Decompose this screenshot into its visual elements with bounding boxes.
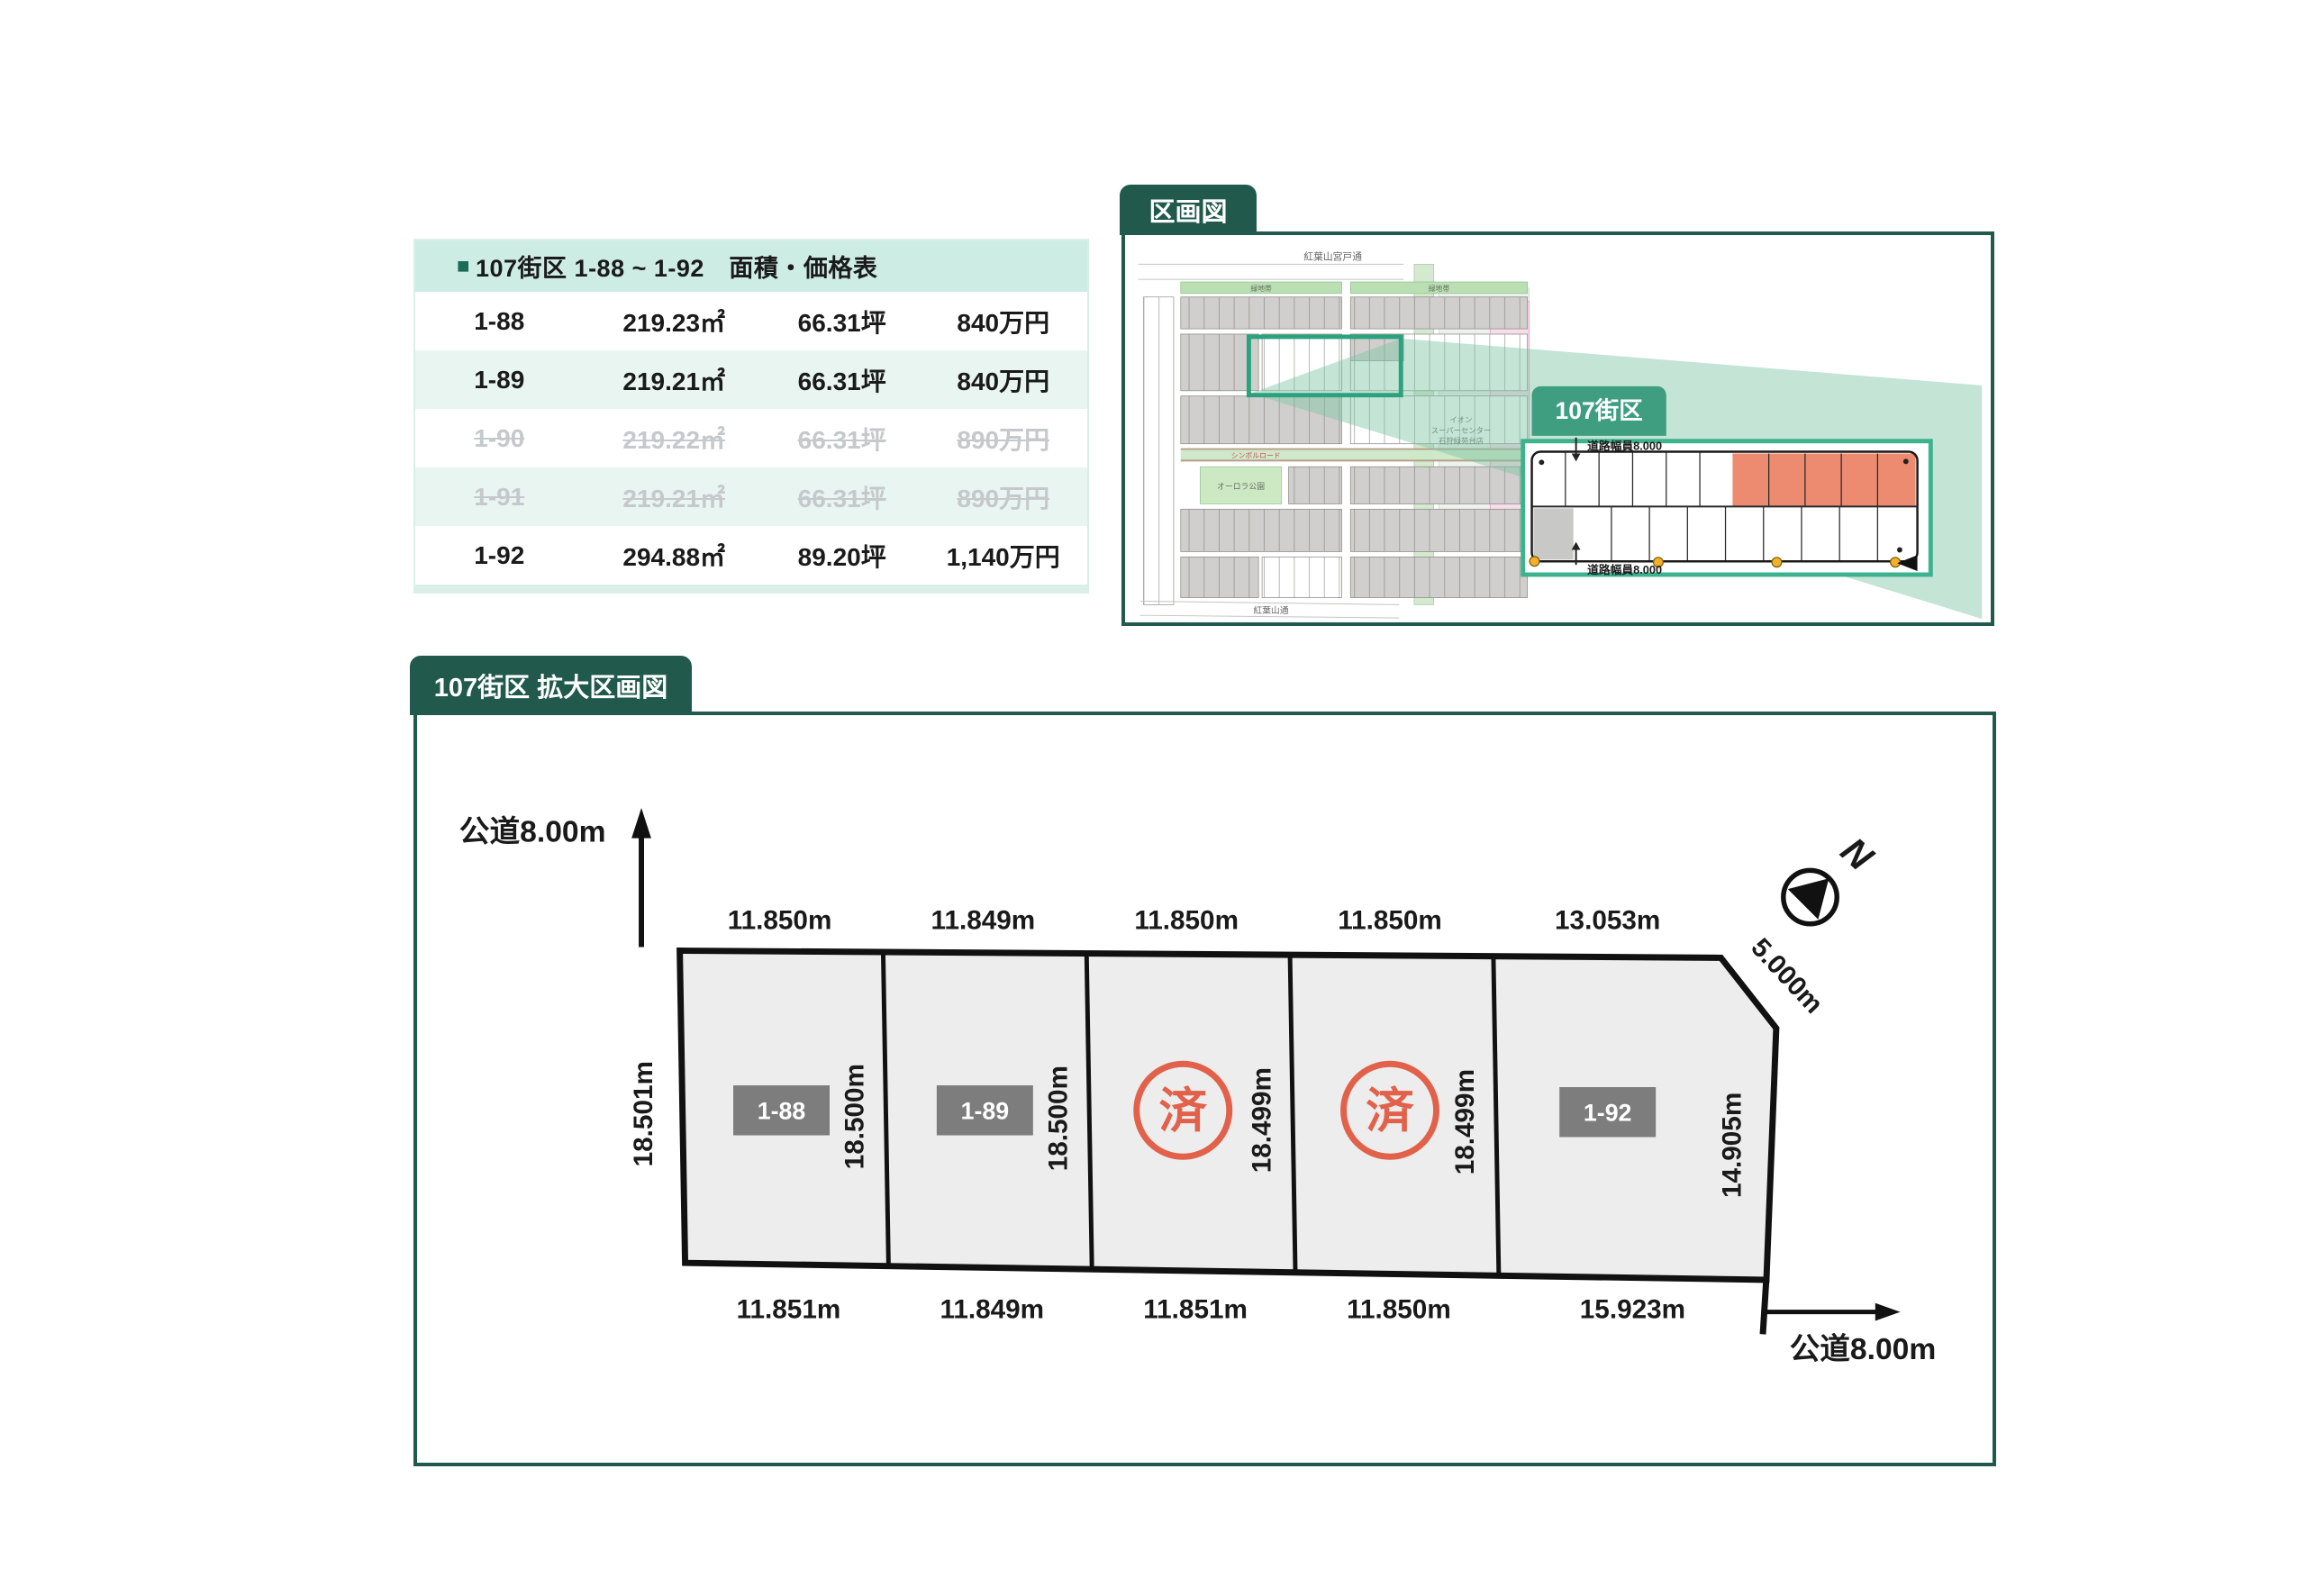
flyer-canvas: ■ 107街区 1-88 ~ 1-92 面積・価格表 1-88 219.23㎡ … <box>0 0 2306 1596</box>
road-bottom-label: 紅葉山通 <box>1253 604 1288 616</box>
cell-price: 890万円 <box>919 421 1087 457</box>
dim-bottom-1-90: 11.851m <box>1143 1295 1248 1325</box>
park-label: オーロラ公園 <box>1217 482 1265 491</box>
cell-price: 890万円 <box>919 479 1087 515</box>
cell-lot: 1-90 <box>415 424 584 453</box>
tag-1-92: 1-92 <box>1584 1100 1632 1127</box>
cell-area: 219.22㎡ <box>584 421 765 457</box>
dim-side-1-90: 18.499m <box>1247 1067 1276 1173</box>
price-table-title: 107街区 1-88 ~ 1-92 面積・価格表 <box>476 249 877 284</box>
tag-1-88: 1-88 <box>758 1098 806 1125</box>
price-table: ■ 107街区 1-88 ~ 1-92 面積・価格表 1-88 219.23㎡ … <box>413 239 1089 594</box>
road-top-left-label: 公道8.00m <box>459 815 606 849</box>
table-row-1-91-sold: 1-91 219.21㎡ 66.31坪 890万円 <box>415 467 1087 526</box>
cell-lot: 1-89 <box>415 366 584 394</box>
cell-price: 1,140万円 <box>919 538 1087 574</box>
road-right-arrow-icon <box>1875 1303 1901 1321</box>
dim-top-1-89: 11.849m <box>931 906 1036 936</box>
cell-lot: 1-92 <box>415 541 584 570</box>
lot-strip <box>1350 297 1527 329</box>
inset-road-width-bottom: 道路幅員8.000 <box>1587 563 1662 576</box>
cell-tsubo: 66.31坪 <box>765 304 920 340</box>
inset-salmon-lots <box>1732 453 1915 506</box>
header-square-icon: ■ <box>457 254 470 279</box>
lot-strip <box>1289 467 1342 503</box>
dim-side-1-88: 18.500m <box>840 1064 870 1169</box>
enlarged-plan-svg: 公道8.00m 11.850m 11.849m 11.850m 11.850m … <box>417 715 1993 1463</box>
dim-bottom-1-88: 11.851m <box>737 1295 841 1325</box>
inset-label: 107街区 <box>1556 397 1643 424</box>
cell-price: 840万円 <box>919 362 1087 398</box>
sold-mark-1-90: 済 <box>1158 1085 1207 1138</box>
cell-tsubo: 89.20坪 <box>765 538 920 574</box>
table-row-1-92: 1-92 294.88㎡ 89.20坪 1,140万円 <box>415 526 1087 585</box>
tag-1-89: 1-89 <box>961 1098 1010 1125</box>
road-up-arrow-icon <box>631 808 651 839</box>
cell-tsubo: 66.31坪 <box>765 421 920 457</box>
dim-bottom-1-89: 11.849m <box>940 1295 1044 1325</box>
table-row-1-90-sold: 1-90 219.22㎡ 66.31坪 890万円 <box>415 409 1087 467</box>
road-top-label: 紅葉山宮戸通 <box>1303 250 1362 262</box>
dim-outer-left: 18.501m <box>629 1061 658 1166</box>
enlarged-plan-panel: 公道8.00m 11.850m 11.849m 11.850m 11.850m … <box>413 712 1996 1466</box>
lot-strip <box>1262 557 1341 597</box>
lot-strip <box>1350 467 1527 503</box>
road-bottom-right-label: 公道8.00m <box>1790 1332 1937 1366</box>
tab-plan-label: 107街区 拡大区画図 <box>434 667 667 704</box>
cell-area: 219.23㎡ <box>584 304 765 340</box>
dim-side-1-89: 18.500m <box>1043 1066 1073 1171</box>
lot-strip <box>1181 297 1342 329</box>
cell-area: 219.21㎡ <box>584 362 765 398</box>
lot-strip <box>1350 557 1527 597</box>
inset-road-width-top: 道路幅員8.000 <box>1587 440 1662 453</box>
cell-tsubo: 66.31坪 <box>765 362 920 398</box>
cell-area: 219.21㎡ <box>584 479 765 515</box>
tab-enlarged-plan: 107街区 拡大区画図 <box>410 656 692 715</box>
cell-lot: 1-88 <box>415 307 584 336</box>
compass: N <box>1784 829 1883 924</box>
dim-bottom-1-91: 11.850m <box>1347 1295 1451 1325</box>
dim-side-1-92: 14.905m <box>1717 1093 1747 1198</box>
bottom-dimensions: 11.851m 11.849m 11.851m 11.850m 15.923m <box>737 1295 1685 1325</box>
overview-map-svg: 紅葉山宮戸通 緑地帯 緑地帯 シンボル <box>1125 235 1991 622</box>
cell-price: 840万円 <box>919 304 1087 340</box>
dim-top-1-88: 11.850m <box>728 906 832 936</box>
dim-top-1-92: 13.053m <box>1555 906 1660 936</box>
cell-lot: 1-91 <box>415 483 584 512</box>
lot-strip <box>1144 297 1174 605</box>
sold-mark-1-91: 済 <box>1366 1085 1414 1138</box>
table-row-1-89: 1-89 219.21㎡ 66.31坪 840万円 <box>415 350 1087 409</box>
cell-tsubo: 66.31坪 <box>765 479 920 515</box>
price-table-header: ■ 107街区 1-88 ~ 1-92 面積・価格表 <box>415 240 1087 292</box>
dim-side-1-91: 18.499m <box>1450 1069 1480 1174</box>
dim-bottom-1-92: 15.923m <box>1580 1295 1685 1325</box>
green-belt-label: 緑地帯 <box>1250 284 1272 293</box>
compass-n-label: N <box>1833 829 1882 879</box>
inset-gray-lot <box>1534 508 1574 559</box>
cell-area: 294.88㎡ <box>584 538 765 574</box>
top-dimensions: 11.850m 11.849m 11.850m 11.850m 13.053m <box>728 906 1661 936</box>
dim-top-1-90: 11.850m <box>1134 906 1239 936</box>
tab-overview-map: 区画図 <box>1120 185 1257 235</box>
tab-overview-label: 区画図 <box>1148 191 1227 229</box>
green-belt-label: 緑地帯 <box>1429 284 1450 293</box>
symbol-road-label: シンボルロード <box>1231 451 1281 459</box>
lot-strip <box>1181 557 1258 597</box>
table-row-1-88: 1-88 219.23㎡ 66.31坪 840万円 <box>415 292 1087 350</box>
lot-strip <box>1350 509 1527 551</box>
lot-strip <box>1181 509 1342 551</box>
dim-top-1-91: 11.850m <box>1338 906 1442 936</box>
right-edge-extension <box>1763 1277 1766 1334</box>
overview-map-panel: 紅葉山宮戸通 緑地帯 緑地帯 シンボル <box>1121 231 1994 626</box>
